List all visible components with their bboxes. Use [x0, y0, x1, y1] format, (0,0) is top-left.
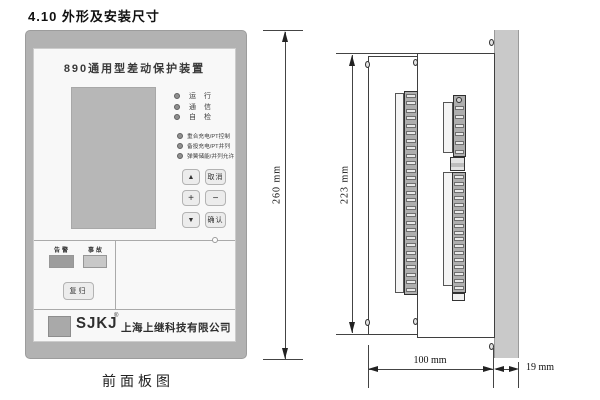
- horizontal-divider-bottom: [34, 309, 235, 310]
- terminal-cell: [455, 115, 464, 119]
- plus-button: +: [182, 190, 200, 206]
- terminal-cell: [406, 236, 416, 240]
- terminal-cell: [406, 169, 416, 173]
- backup-led-label: 备投充电/PT并列: [187, 141, 230, 150]
- dim100-label: 100 mm: [400, 355, 460, 366]
- alarm-label: 告警: [49, 245, 75, 254]
- dim19-label: 19 mm: [526, 362, 554, 373]
- terminal-cell: [454, 286, 464, 290]
- comm-led-icon: [174, 104, 180, 110]
- selfcheck-led-label: 自 检: [189, 112, 214, 122]
- terminal-cell: [454, 196, 464, 200]
- terminal-cell: [406, 288, 416, 292]
- terminal-cell: [406, 124, 416, 128]
- terminal-cell: [454, 224, 464, 228]
- dim223-line: [352, 55, 353, 333]
- terminal-cell: [406, 191, 416, 195]
- terminal-cell: [406, 206, 416, 210]
- terminal-cell: [454, 182, 464, 186]
- front-panel-frame: 890通用型差动保护装置 运 行 通 信 自 检 重合充电/PT控制 备投充电/…: [25, 30, 247, 359]
- reset-button: 复归: [63, 282, 94, 300]
- terminal-cell: [406, 131, 416, 135]
- terminal-cell: [454, 210, 464, 214]
- up-button: ▲: [182, 169, 200, 185]
- spring-led-icon: [177, 153, 183, 159]
- divider-screw-hole: [212, 237, 218, 243]
- terminal-cell: [406, 258, 416, 262]
- terminal-cell: [455, 132, 464, 136]
- led-row-selfcheck: 自 检: [174, 112, 214, 122]
- terminal-cell: [454, 189, 464, 193]
- terminal-cell: [406, 183, 416, 187]
- terminal-cell: [455, 124, 464, 128]
- led-row-spring: 弹簧储能/并列允许: [177, 151, 237, 160]
- terminal-cell: [454, 175, 464, 179]
- terminal-screw-icon: [456, 97, 462, 103]
- terminal-cell: [406, 221, 416, 225]
- cancel-button: 取消: [205, 169, 226, 185]
- screw-icon: [413, 318, 418, 325]
- reclose-led-label: 重合充电/PT控制: [187, 131, 230, 140]
- terminal-cell: [406, 161, 416, 165]
- left-terminal-strip: [395, 93, 404, 293]
- terminal-connector: [450, 157, 465, 171]
- lcd-screen: [71, 87, 156, 229]
- dim223-arrow-up-icon: [349, 55, 355, 66]
- alarm-lamp: [49, 255, 74, 268]
- dim100-arrow-right-icon: [483, 366, 493, 372]
- dim260-line: [285, 32, 286, 359]
- led-row-run: 运 行: [174, 91, 214, 101]
- dim260-arrow-up-icon: [282, 31, 288, 42]
- left-terminal-block: [404, 91, 418, 295]
- dim223-top-tick: [336, 53, 417, 54]
- brand-logo-text: SJKJ: [76, 315, 118, 333]
- backup-led-icon: [177, 143, 183, 149]
- terminal-cell: [406, 94, 416, 98]
- terminal-cell: [406, 116, 416, 120]
- terminal-cell: [406, 146, 416, 150]
- terminal-cell: [454, 265, 464, 269]
- terminal-cell: [406, 101, 416, 105]
- dim100-line: [368, 369, 493, 370]
- mounting-wall: [494, 30, 519, 358]
- front-panel-caption: 前面板图: [102, 371, 174, 391]
- dim260-bottom-tick: [263, 359, 303, 360]
- terminal-cell: [406, 251, 416, 255]
- terminal-cell: [406, 273, 416, 277]
- terminal-cell: [406, 228, 416, 232]
- run-led-icon: [174, 93, 180, 99]
- terminal-cell: [454, 217, 464, 221]
- fault-label: 事故: [83, 245, 109, 254]
- terminal-cell: [406, 265, 416, 269]
- reclose-led-icon: [177, 133, 183, 139]
- terminal-cell: [455, 106, 464, 110]
- terminal-cell: [406, 243, 416, 247]
- terminal-cell: [406, 198, 416, 202]
- terminal-cell: [454, 231, 464, 235]
- led-row-comm: 通 信: [174, 102, 214, 112]
- horizontal-divider-top: [34, 240, 235, 241]
- terminal-cell: [455, 141, 464, 145]
- terminal-cell: [406, 139, 416, 143]
- terminal-cell: [406, 109, 416, 113]
- screw-icon: [413, 59, 418, 66]
- front-panel-face: 890通用型差动保护装置 运 行 通 信 自 检 重合充电/PT控制 备投充电/…: [33, 48, 236, 342]
- terminal-cell: [454, 237, 464, 241]
- terminal-cell: [454, 203, 464, 207]
- comm-led-label: 通 信: [189, 102, 214, 112]
- minus-button: −: [205, 190, 226, 206]
- terminal-cell: [454, 244, 464, 248]
- dim223-label: 223 mm: [340, 155, 351, 215]
- connector-band: [451, 163, 464, 167]
- right-upper-terminal-block: [453, 95, 466, 157]
- screw-icon: [365, 61, 370, 68]
- terminal-cell: [406, 280, 416, 284]
- terminal-cell: [406, 176, 416, 180]
- manual-page: { "page": { "section_title": "4.10 外形及安装…: [0, 0, 600, 400]
- down-button: ▼: [182, 212, 200, 228]
- brand-logo-icon: [48, 316, 71, 337]
- screw-icon: [365, 319, 370, 326]
- vertical-divider: [115, 240, 116, 309]
- terminal-cell: [454, 258, 464, 262]
- spring-led-label: 弹簧储能/并列允许: [187, 151, 234, 160]
- run-led-label: 运 行: [189, 91, 214, 101]
- dim100-arrow-left-icon: [368, 366, 378, 372]
- dim260-label: 260 mm: [272, 155, 283, 215]
- terminal-cell: [406, 213, 416, 217]
- led-row-backup: 备投充电/PT并列: [177, 141, 232, 150]
- selfcheck-led-icon: [174, 114, 180, 120]
- device-title: 890通用型差动保护装置: [34, 60, 235, 76]
- right-lower-terminal-block: [452, 172, 466, 293]
- confirm-button: 确认: [205, 212, 226, 228]
- led-row-reclose: 重合充电/PT控制: [177, 131, 232, 140]
- dim260-arrow-down-icon: [282, 348, 288, 359]
- section-title: 4.10 外形及安装尺寸: [28, 6, 160, 25]
- fault-lamp: [83, 255, 107, 268]
- screw-icon: [489, 39, 494, 46]
- dim19-arrow-left-icon: [494, 366, 504, 372]
- terminal-tail: [452, 293, 465, 301]
- terminal-cell: [406, 154, 416, 158]
- terminal-cell: [454, 272, 464, 276]
- terminal-cell: [454, 251, 464, 255]
- company-name: 上海上继科技有限公司: [121, 320, 231, 335]
- dim19-arrow-right-icon: [509, 366, 519, 372]
- right-upper-terminal-strip: [443, 102, 453, 153]
- dim223-arrow-down-icon: [349, 322, 355, 333]
- registered-mark: ®: [114, 313, 118, 319]
- terminal-cell: [454, 279, 464, 283]
- terminal-cell: [455, 150, 464, 154]
